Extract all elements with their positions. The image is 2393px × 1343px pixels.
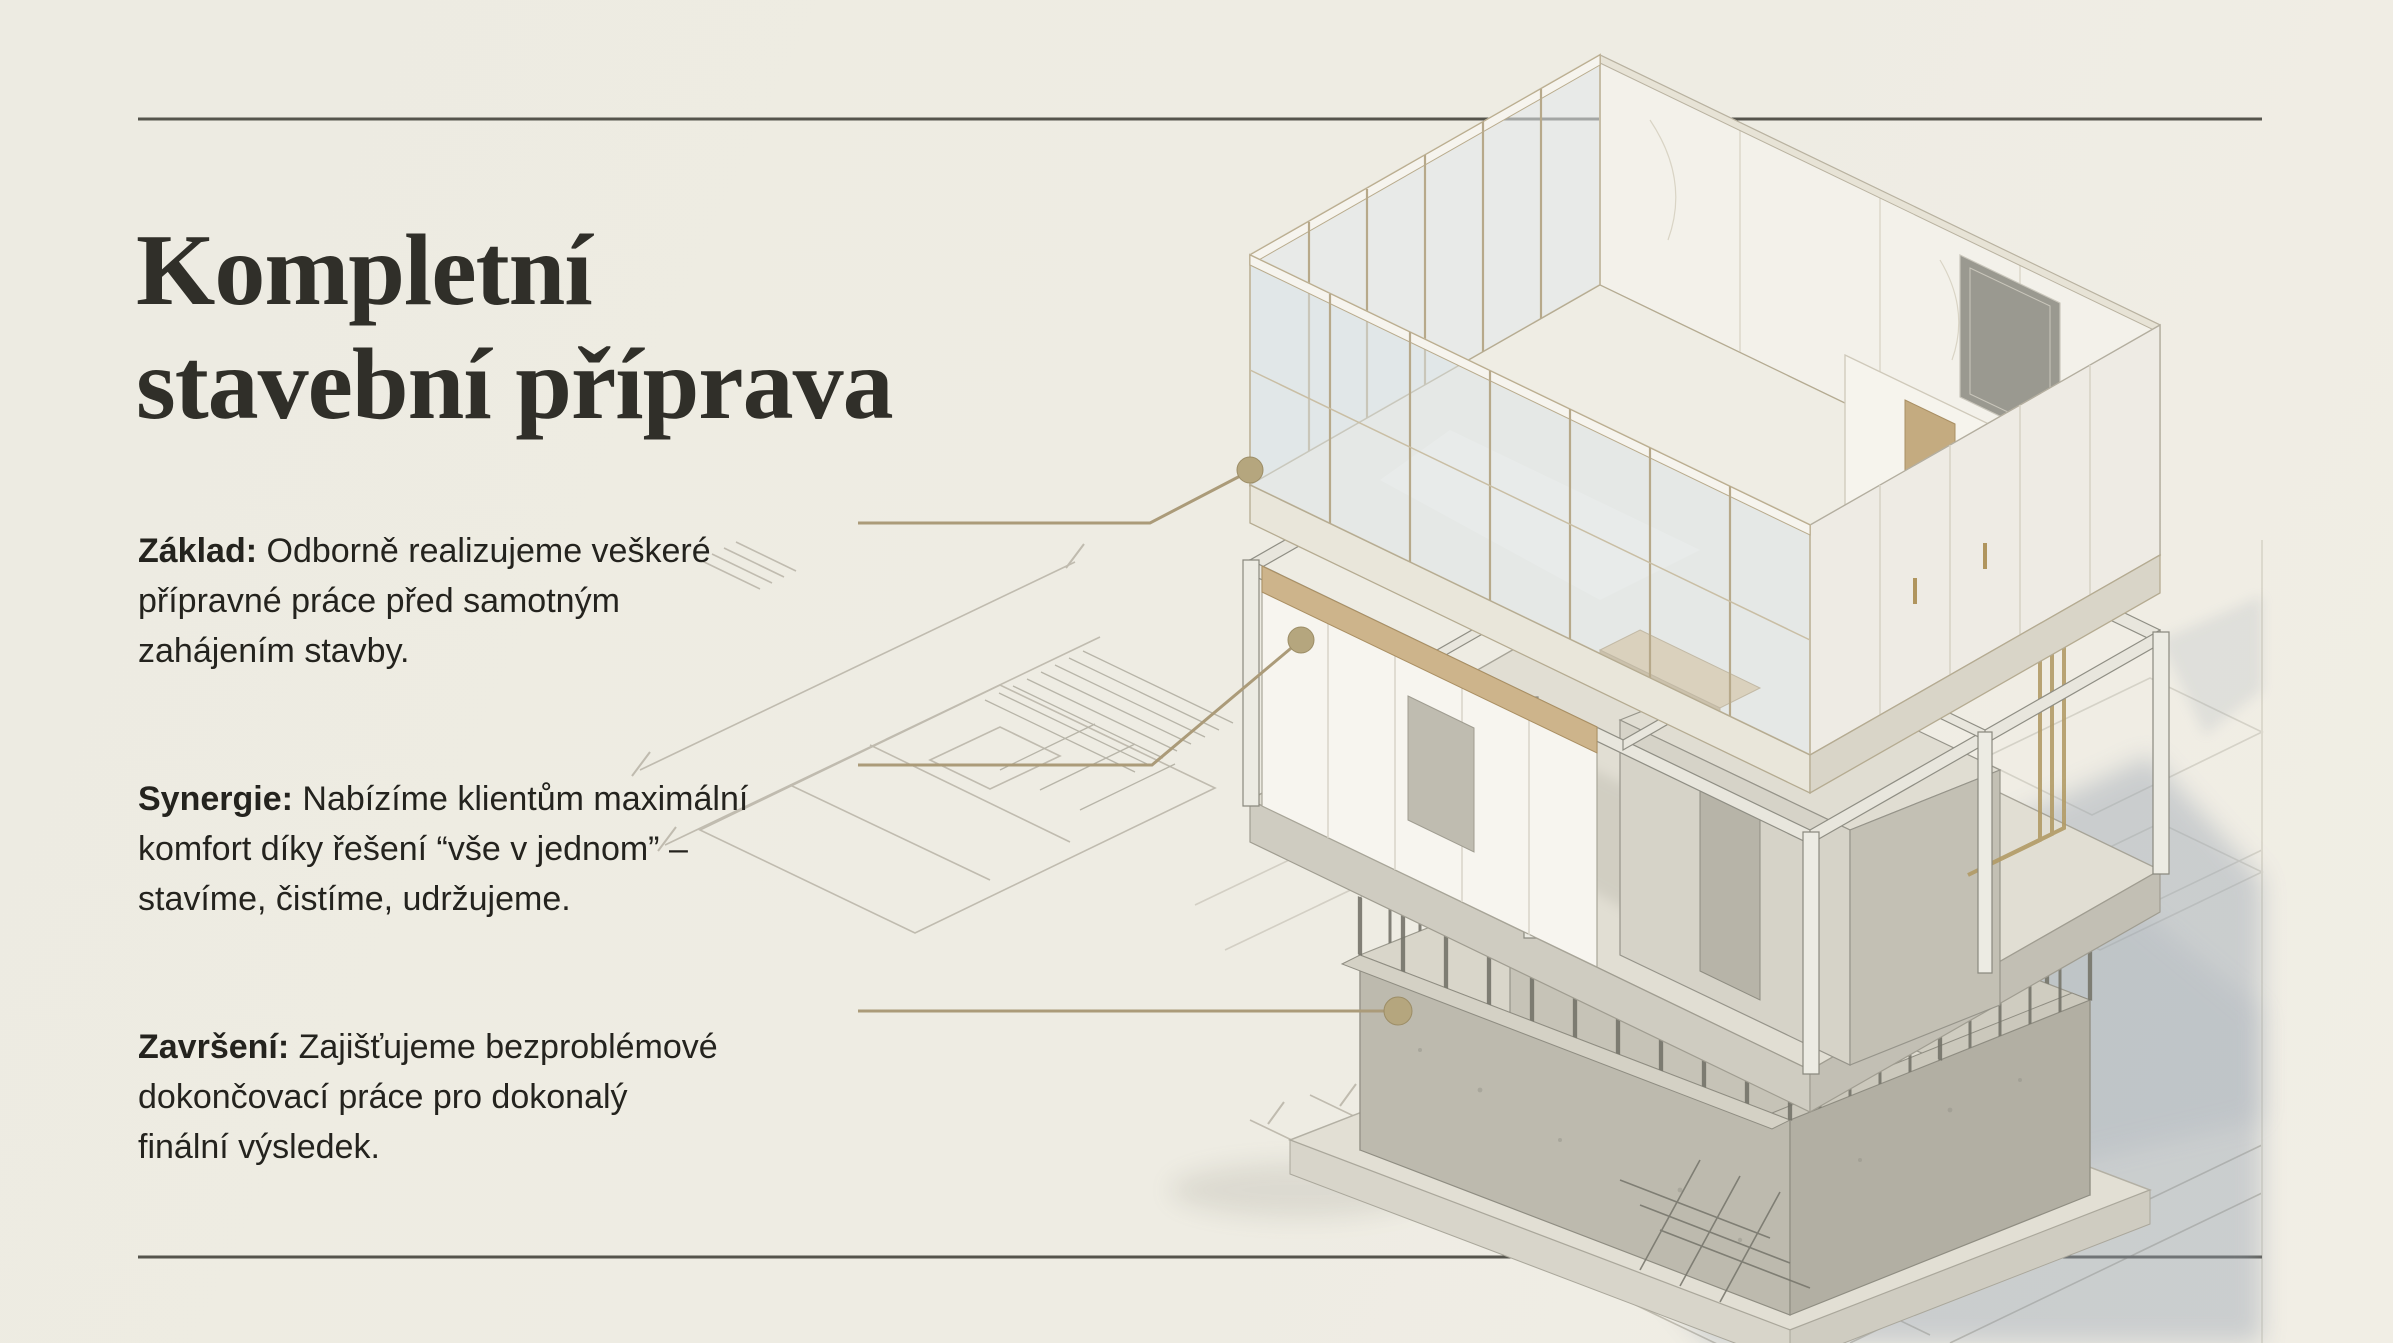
section-synergie: Synergie: Nabízíme klientům maximální ko… bbox=[138, 774, 898, 924]
section-zavrseni: Završení: Zajišťujeme bezproblémové doko… bbox=[138, 1022, 898, 1172]
section-synergie-lead: Synergie: bbox=[138, 780, 293, 818]
title-line-1: Kompletní bbox=[136, 214, 893, 328]
leader-zaklad bbox=[858, 474, 1244, 523]
dot-synergie bbox=[1288, 627, 1314, 653]
dot-zavrseni bbox=[1384, 997, 1412, 1025]
section-zavrseni-lead: Završení: bbox=[138, 1028, 289, 1066]
page-title: Kompletní stavební příprava bbox=[136, 214, 893, 442]
section-zaklad: Základ: Odborně realizujeme veškeré příp… bbox=[138, 526, 898, 676]
title-line-2: stavební příprava bbox=[136, 328, 893, 442]
section-zaklad-lead: Základ: bbox=[138, 532, 257, 570]
slide: Kompletní stavební příprava Základ: Odbo… bbox=[0, 0, 2393, 1343]
dot-zaklad bbox=[1237, 457, 1263, 483]
